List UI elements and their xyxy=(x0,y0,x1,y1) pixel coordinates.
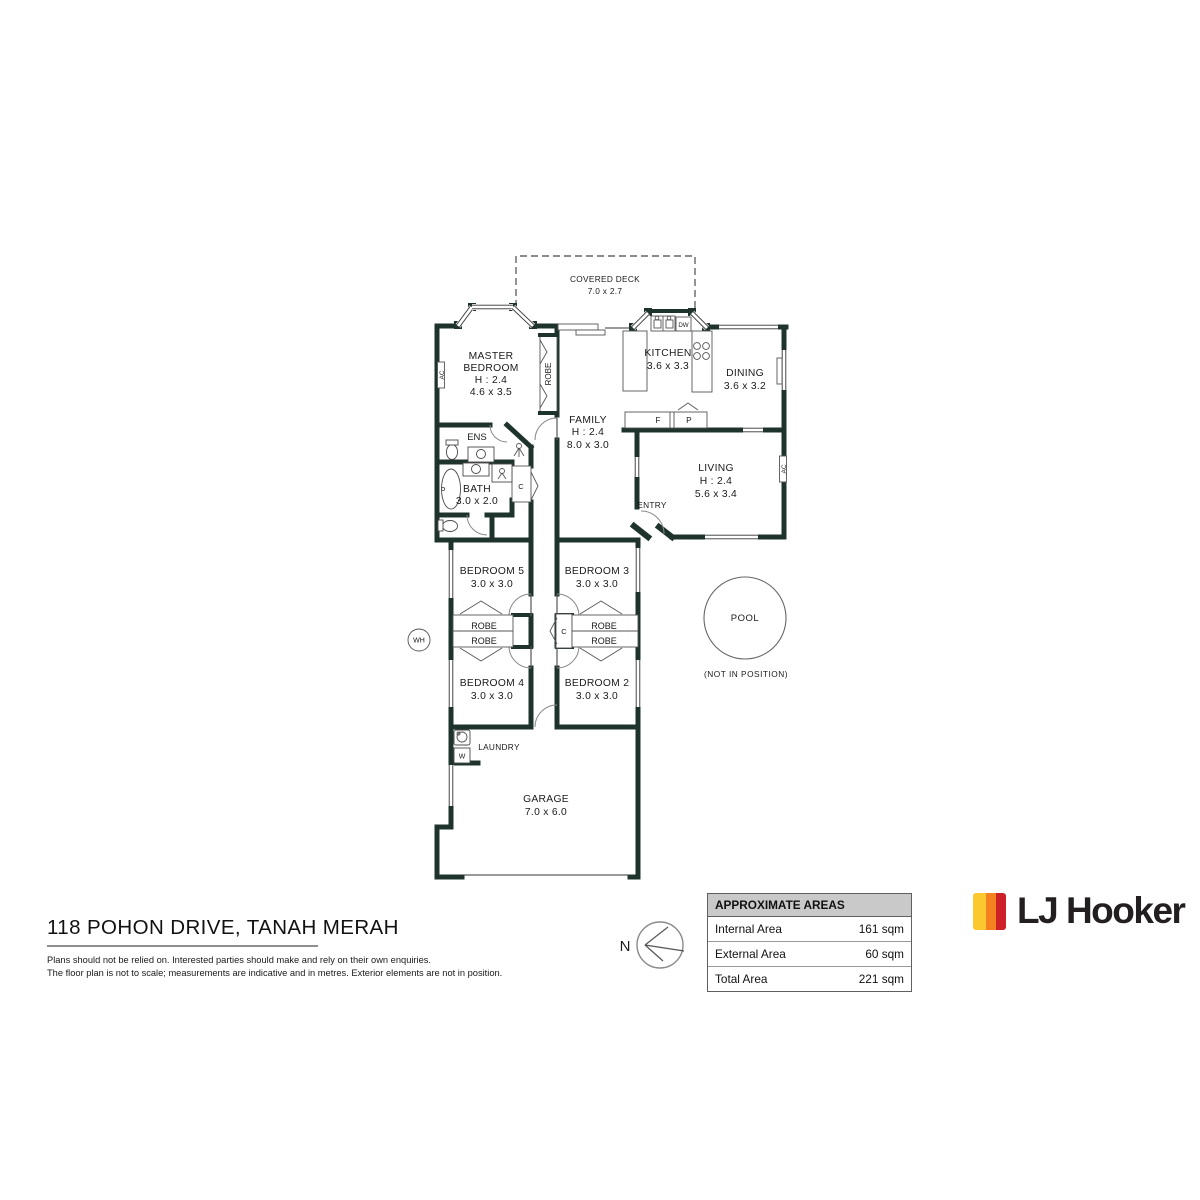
ac-label-living: AC xyxy=(781,464,788,473)
room-dims-bedroom5: 3.0 x 3.0 xyxy=(471,579,513,590)
room-label-bedroom4: BEDROOM 4 xyxy=(460,678,525,689)
areas-row-external: External Area 60 sqm xyxy=(708,942,911,967)
room-height-family: H : 2.4 xyxy=(572,427,604,438)
kitchen-counter-left xyxy=(623,331,647,391)
room-dims-deck: 7.0 x 2.7 xyxy=(588,286,623,296)
title-block: 118 POHON DRIVE, TANAH MERAH Plans shoul… xyxy=(47,916,502,979)
brand-logo-mark xyxy=(973,893,1006,930)
room-dims-bedroom4: 3.0 x 3.0 xyxy=(471,691,513,702)
kitchen-fixtures: DW F P xyxy=(623,316,712,428)
room-dims-dining: 3.6 x 3.2 xyxy=(724,381,766,392)
fridge-pantry-bench xyxy=(625,412,707,428)
closet-label-bath: C xyxy=(518,482,524,491)
sliding-door xyxy=(558,324,598,330)
areas-row-total: Total Area 221 sqm xyxy=(708,967,911,991)
pool-note: (NOT IN POSITION) xyxy=(704,669,788,679)
room-label-bath: BATH xyxy=(463,484,491,495)
washer-label: W xyxy=(459,754,466,761)
floor-plan-drawing: COVERED DECK 7.0 x 2.7 xyxy=(0,0,1200,1200)
areas-row-label: Total Area xyxy=(715,972,767,986)
room-label-deck: COVERED DECK xyxy=(570,274,640,284)
room-label-ens: ENS xyxy=(467,432,487,443)
areas-row-value: 221 sqm xyxy=(859,972,904,986)
room-label-garage: GARAGE xyxy=(523,794,569,805)
robe-label-master: ROBE xyxy=(544,363,553,386)
dishwasher-label: DW xyxy=(678,322,688,329)
room-dims-bath: 3.0 x 2.0 xyxy=(456,496,498,507)
room-label-bedroom5: BEDROOM 5 xyxy=(460,566,525,577)
north-label: N xyxy=(620,938,631,955)
disclaimer-line-1: Plans should not be relied on. Intereste… xyxy=(47,954,502,967)
ens-shower xyxy=(514,444,524,458)
room-height-living: H : 2.4 xyxy=(700,476,732,487)
room-label-master-1: MASTER xyxy=(469,351,514,362)
room-label-laundry: LAUNDRY xyxy=(478,742,520,752)
fridge-label: F xyxy=(655,415,660,425)
areas-table: APPROXIMATE AREAS Internal Area 161 sqm … xyxy=(707,893,912,992)
wh-label: WH xyxy=(413,638,425,645)
covered-deck: COVERED DECK 7.0 x 2.7 xyxy=(516,256,695,313)
robe-label-2: ROBE xyxy=(471,636,497,646)
ens-toilet xyxy=(447,445,458,460)
robe-label-3: ROBE xyxy=(591,621,617,631)
floor-plan-page: { "rooms": { "deck": {"name": "COVERED D… xyxy=(0,0,1200,1200)
pool: POOL (NOT IN POSITION) xyxy=(704,577,788,679)
room-labels: MASTER BEDROOM H : 2.4 4.6 x 3.5 ROBE KI… xyxy=(456,348,766,818)
room-dims-master: 4.6 x 3.5 xyxy=(470,387,512,398)
room-label-family: FAMILY xyxy=(569,415,607,426)
areas-row-value: 161 sqm xyxy=(859,922,904,936)
room-label-bedroom3: BEDROOM 3 xyxy=(565,566,630,577)
room-label-kitchen: KITCHEN xyxy=(644,348,691,359)
page-title: 118 POHON DRIVE, TANAH MERAH xyxy=(47,916,502,940)
room-label-dining: DINING xyxy=(726,368,764,379)
room-dims-bedroom3: 3.0 x 3.0 xyxy=(576,579,618,590)
room-dims-family: 8.0 x 3.0 xyxy=(567,440,609,451)
areas-row-internal: Internal Area 161 sqm xyxy=(708,917,911,942)
room-dims-bedroom2: 3.0 x 3.0 xyxy=(576,691,618,702)
kitchen-counter-right xyxy=(692,331,712,392)
compass: N xyxy=(620,922,684,968)
robe-label-4: ROBE xyxy=(591,636,617,646)
areas-row-label: External Area xyxy=(715,947,786,961)
laundry-fixtures: W xyxy=(454,730,470,763)
room-label-entry: ENTRY xyxy=(637,500,667,510)
robe-label-1: ROBE xyxy=(471,621,497,631)
areas-row-value: 60 sqm xyxy=(865,947,904,961)
room-dims-kitchen: 3.6 x 3.3 xyxy=(647,361,689,372)
pool-label: POOL xyxy=(731,613,759,624)
pantry-label: P xyxy=(686,415,692,425)
room-label-living: LIVING xyxy=(698,463,734,474)
wc-toilet xyxy=(443,521,458,532)
areas-row-label: Internal Area xyxy=(715,922,782,936)
water-heater: WH xyxy=(408,629,430,651)
title-underline xyxy=(47,945,318,947)
areas-table-header: APPROXIMATE AREAS xyxy=(708,894,911,917)
ac-label-master: AC xyxy=(439,370,446,379)
room-label-bedroom2: BEDROOM 2 xyxy=(565,678,630,689)
closet-label-hall: C xyxy=(561,627,567,636)
room-height-master: H : 2.4 xyxy=(475,375,507,386)
brand-logo: LJ Hooker xyxy=(973,893,1184,930)
brand-logo-text: LJ Hooker xyxy=(1017,893,1184,929)
room-dims-garage: 7.0 x 6.0 xyxy=(525,807,567,818)
disclaimer-line-2: The floor plan is not to scale; measurem… xyxy=(47,967,502,980)
room-dims-living: 5.6 x 3.4 xyxy=(695,489,737,500)
room-label-master-2: BEDROOM xyxy=(463,363,518,374)
